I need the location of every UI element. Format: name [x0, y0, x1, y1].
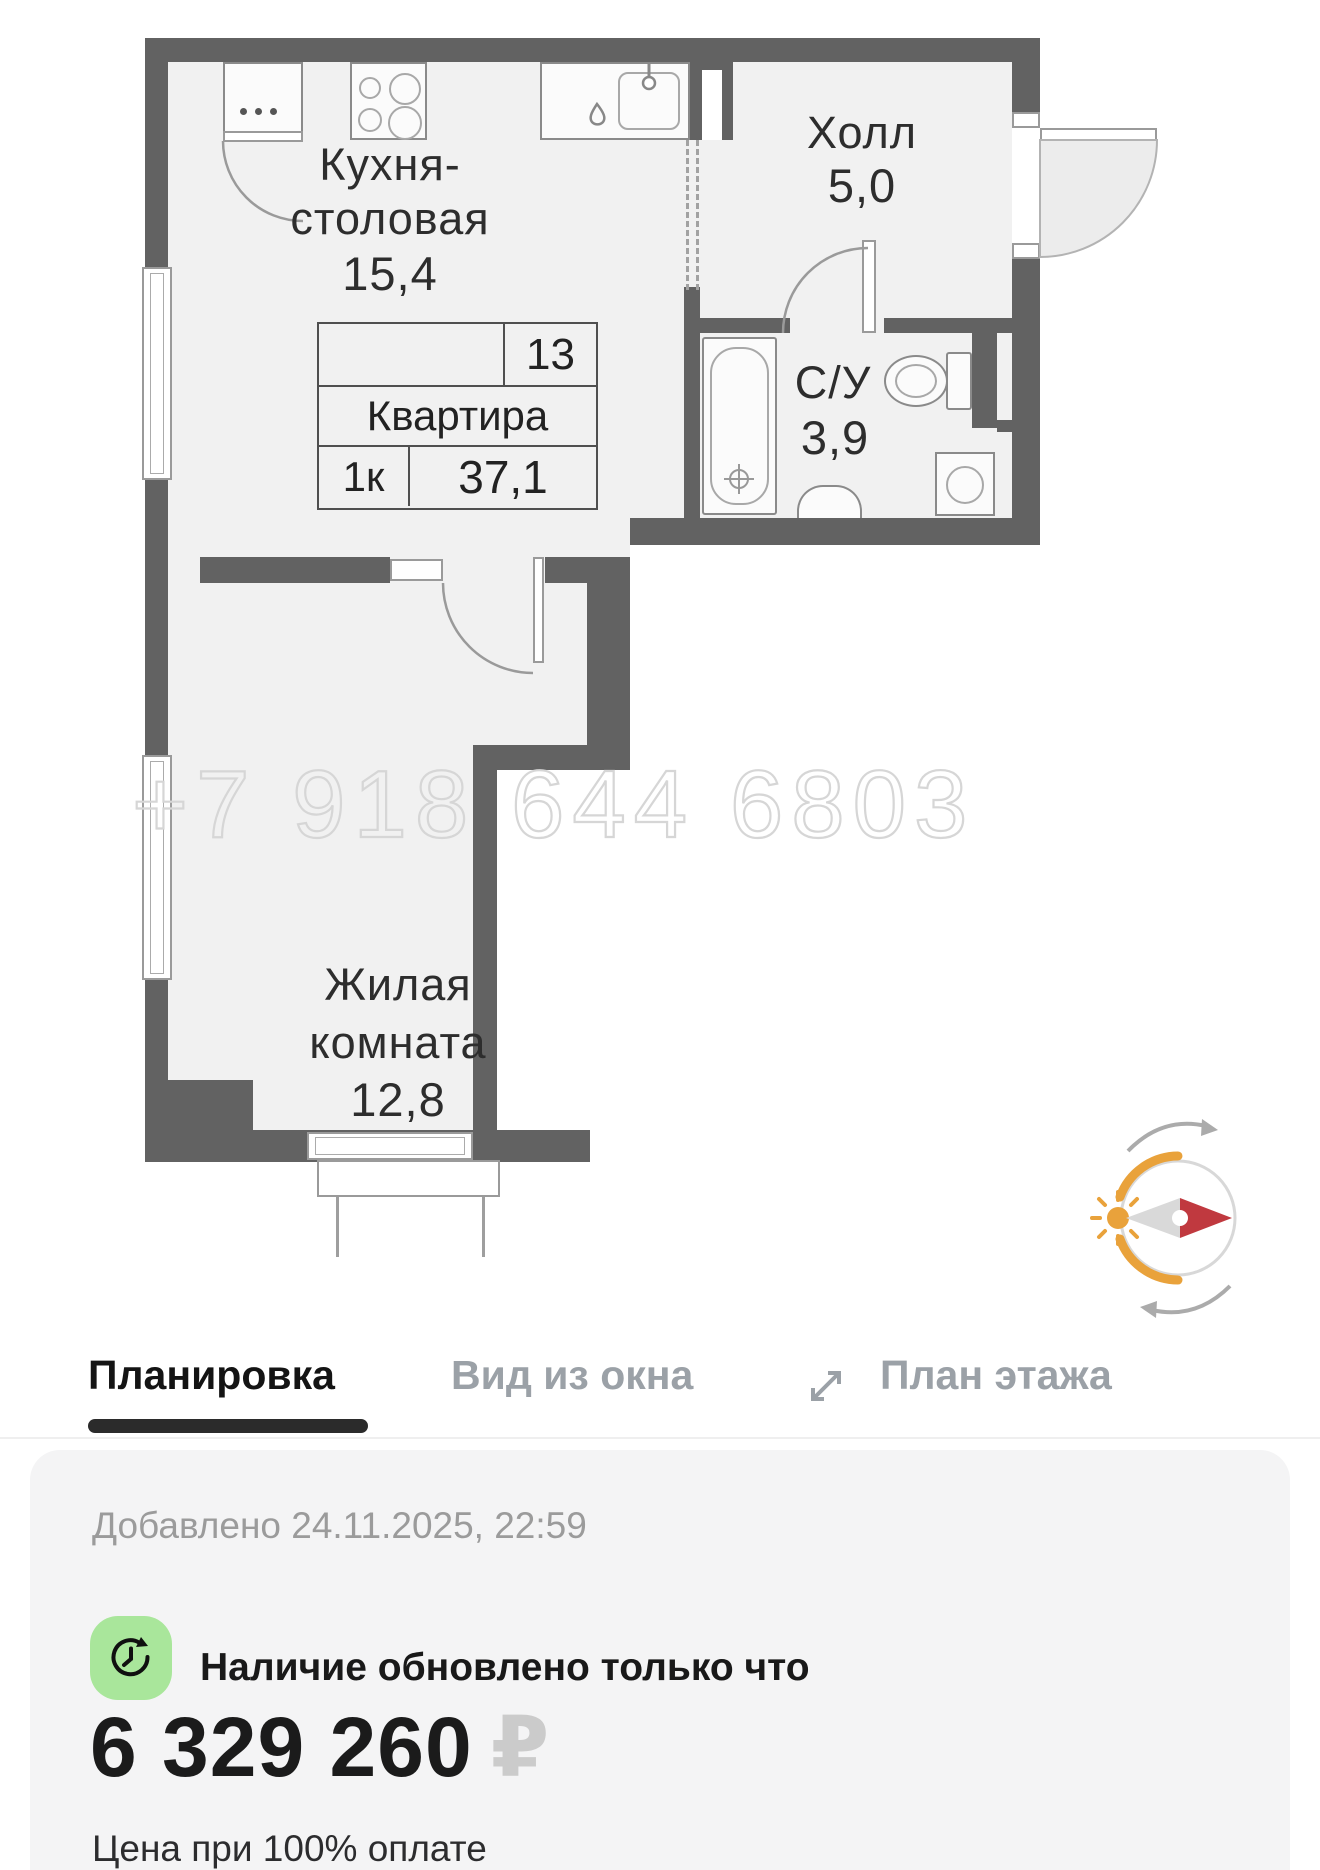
availability-text: Наличие обновлено только что [200, 1646, 810, 1690]
tabs-divider [0, 1437, 1320, 1439]
hall-area: 5,0 [762, 162, 962, 209]
living-door-arc [443, 583, 533, 673]
table-title: Квартира [319, 387, 596, 445]
bath-drain-icon [724, 464, 754, 494]
sun-direction-compass-icon [1092, 1119, 1235, 1318]
faucet-icon [643, 77, 655, 89]
rooms-count: 1к [319, 447, 410, 506]
kitchen-label: столовая [230, 196, 550, 241]
active-tab-indicator [88, 1419, 368, 1433]
tab-vid-iz-okna[interactable]: Вид из окна [451, 1352, 693, 1399]
availability-badge [90, 1616, 172, 1700]
added-date: Добавлено 24.11.2025, 22:59 [92, 1505, 587, 1547]
kitchen-area: 15,4 [290, 250, 490, 297]
bathroom-label: С/У [733, 360, 933, 405]
floor-number: 13 [505, 324, 596, 385]
entrance-door-swing [1040, 140, 1157, 257]
living-area: 12,8 [298, 1076, 498, 1123]
apartment-info-table: 13 Квартира 1к 37,1 [317, 322, 598, 510]
refresh-clock-icon [106, 1633, 156, 1683]
living-label: комната [238, 1020, 558, 1065]
price: 6 329 260₽ [90, 1698, 550, 1796]
expand-diagonal-icon[interactable] [800, 1360, 852, 1412]
hall-label: Холл [762, 110, 962, 155]
total-area: 37,1 [410, 447, 596, 506]
listing-screen: Кухня- столовая 15,4 Холл 5,0 С/У 3,9 Жи… [0, 0, 1320, 1870]
bathroom-area: 3,9 [735, 414, 935, 461]
kitchen-label: Кухня- [240, 142, 540, 187]
listing-info-card: Добавлено 24.11.2025, 22:59 Наличие обно… [30, 1450, 1290, 1870]
tab-plan-etazha[interactable]: План этажа [880, 1352, 1112, 1399]
price-value: 6 329 260 [90, 1700, 473, 1794]
ruble-sign: ₽ [491, 1698, 550, 1796]
bathroom-door-arc [783, 248, 868, 333]
price-note: Цена при 100% оплате [92, 1828, 487, 1870]
water-drop-icon [591, 104, 605, 124]
plan-drawing-layer [0, 0, 1320, 1340]
living-label: Жилая [248, 962, 548, 1007]
tab-planirovka[interactable]: Планировка [88, 1352, 335, 1399]
phone-watermark: +7 918 644 6803 [132, 750, 975, 860]
floor-plan: Кухня- столовая 15,4 Холл 5,0 С/У 3,9 Жи… [0, 0, 1320, 1340]
table-empty-cell [319, 324, 505, 385]
